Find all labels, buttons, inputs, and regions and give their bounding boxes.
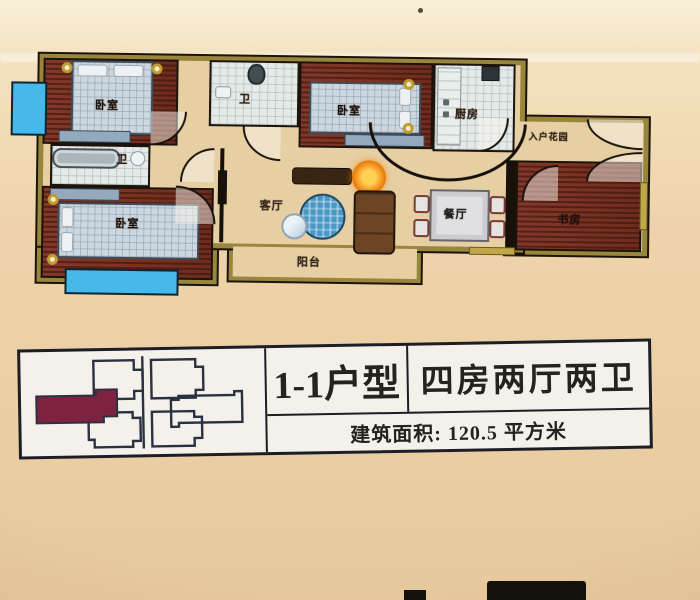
room-label-study: 书房 <box>557 215 581 226</box>
room-label-bedroom: 卧室 <box>337 106 361 117</box>
dresser-icon <box>50 188 120 201</box>
pillow-icon <box>399 88 411 106</box>
stove-burner-icon <box>443 99 449 105</box>
chair-icon <box>489 220 505 238</box>
bay-window-bottom <box>64 268 178 296</box>
bay-window-left <box>11 81 48 135</box>
room-label-bathroom: 卫 <box>239 95 251 106</box>
room-label-dining-room: 餐厅 <box>443 209 467 220</box>
chair-icon <box>414 195 430 213</box>
pillow-icon <box>61 207 73 227</box>
window-sill <box>469 247 515 256</box>
interior-wall <box>218 170 227 204</box>
key-plan-cell <box>20 348 268 456</box>
pillow-icon <box>113 65 143 77</box>
bottom-edge-shape <box>487 581 586 600</box>
legend-box: 1-1户型 四房两厅两卫 建筑面积: 120.5 平方米 <box>17 338 653 459</box>
photo-background: 卧室 卫 卧室 卫 卧室 厨房 入户花园 客厅 餐厅 书房 阳台 <box>0 0 700 600</box>
fridge-icon <box>481 66 499 81</box>
floor-plan: 卧室 卫 卧室 卫 卧室 厨房 入户花园 客厅 餐厅 书房 阳台 <box>34 52 653 311</box>
unit-area: 建筑面积: 120.5 平方米 <box>267 408 650 453</box>
bedpost-icon <box>47 254 58 265</box>
bathtub-icon <box>52 148 120 169</box>
bedpost-icon <box>403 79 414 90</box>
room-label-kitchen: 厨房 <box>455 110 479 121</box>
chair-icon <box>413 219 429 237</box>
room-label-bedroom: 卧室 <box>95 101 119 112</box>
building-key-plan <box>22 350 264 454</box>
bedpost-icon <box>151 63 162 74</box>
tv-cabinet-icon <box>292 167 352 185</box>
pillow-icon <box>61 232 73 252</box>
sofa-icon <box>353 190 396 255</box>
bottom-edge-shape <box>404 590 426 600</box>
room-label-balcony: 阳台 <box>297 257 321 268</box>
sink-icon <box>215 86 231 98</box>
pillow-icon <box>77 64 107 76</box>
speck <box>418 8 423 13</box>
bedpost-icon <box>48 194 59 205</box>
room-label-entry-garden: 入户花园 <box>529 133 569 143</box>
stove-burner-icon <box>443 111 449 117</box>
room-label-bedroom: 卧室 <box>115 219 139 230</box>
unit-rooms: 四房两厅两卫 <box>408 342 649 412</box>
room-label-living-room: 客厅 <box>260 201 284 212</box>
interior-wall <box>505 160 516 256</box>
bedpost-icon <box>61 62 72 73</box>
highlighted-unit <box>36 389 117 423</box>
dresser-icon <box>59 130 131 143</box>
chair-icon <box>490 196 506 214</box>
unit-name: 1-1户型 <box>266 346 409 414</box>
window-sill <box>639 182 648 230</box>
toilet-icon <box>247 64 265 85</box>
room-label-bathroom: 卫 <box>116 155 128 166</box>
